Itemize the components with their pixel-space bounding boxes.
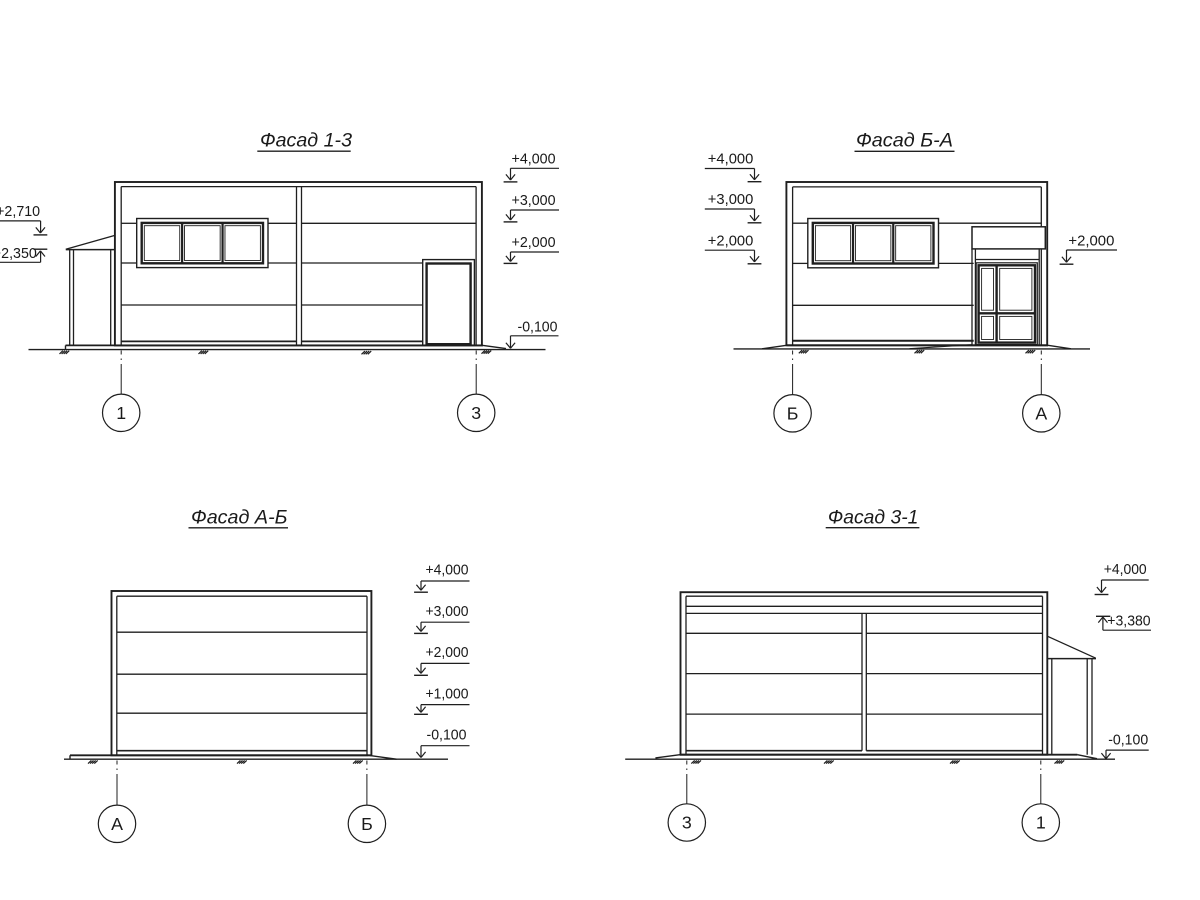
svg-text:+3,380: +3,380: [1107, 614, 1150, 630]
svg-text:+3,000: +3,000: [426, 604, 469, 620]
svg-text:+2,000: +2,000: [426, 645, 469, 661]
svg-text:Фасад А-Б: Фасад А-Б: [191, 507, 288, 529]
svg-text:-0,100: -0,100: [518, 319, 558, 335]
svg-text:Фасад 1-3: Фасад 1-3: [260, 129, 352, 151]
svg-text:Фасад Б-А: Фасад Б-А: [856, 129, 953, 151]
svg-text:Фасад 3-1: Фасад 3-1: [828, 507, 919, 529]
svg-text:+2,710: +2,710: [0, 204, 40, 220]
svg-text:1: 1: [1036, 813, 1046, 833]
svg-text:1: 1: [116, 403, 126, 423]
svg-text:+4,000: +4,000: [426, 563, 469, 579]
svg-text:+3,000: +3,000: [512, 193, 556, 209]
svg-text:-0,100: -0,100: [427, 727, 467, 743]
svg-text:3: 3: [682, 813, 692, 833]
svg-text:А: А: [111, 814, 123, 834]
svg-text:3: 3: [471, 403, 481, 423]
svg-text:+2,000: +2,000: [708, 233, 754, 249]
svg-text:+2,350: +2,350: [0, 246, 37, 262]
svg-text:+3,000: +3,000: [708, 192, 754, 208]
svg-text:-0,100: -0,100: [1108, 732, 1148, 748]
svg-text:А: А: [1035, 404, 1047, 424]
svg-text:+4,000: +4,000: [1104, 562, 1147, 578]
svg-text:+4,000: +4,000: [512, 152, 556, 168]
svg-text:Б: Б: [361, 814, 373, 834]
svg-text:+2,000: +2,000: [1068, 234, 1114, 250]
svg-text:Б: Б: [787, 404, 799, 424]
svg-text:+4,000: +4,000: [708, 152, 754, 168]
svg-text:+1,000: +1,000: [426, 686, 469, 702]
svg-text:+2,000: +2,000: [512, 235, 556, 251]
